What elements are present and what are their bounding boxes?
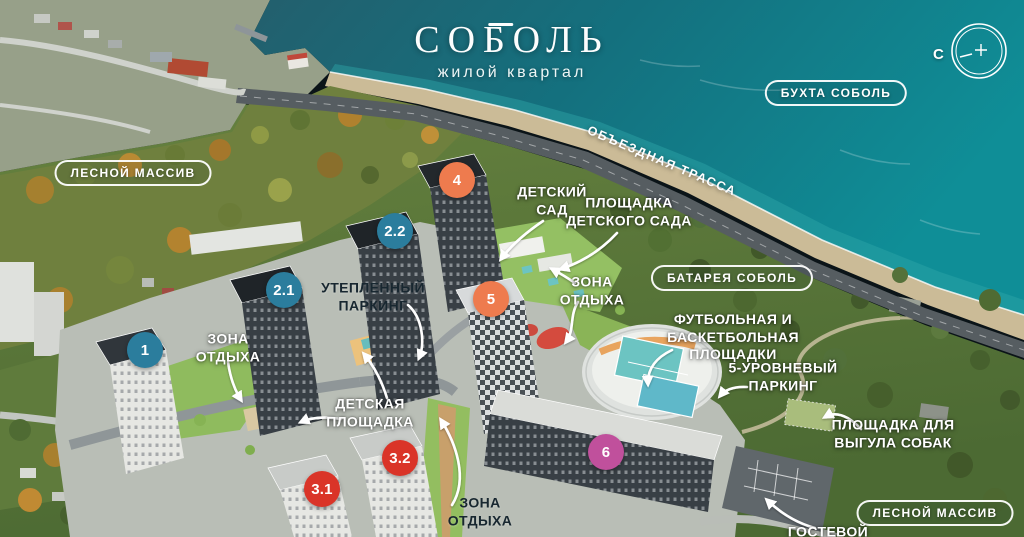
label-sports-grounds: ФУТБОЛЬНАЯ И БАСКЕТБОЛЬНАЯ ПЛОЩАДКИ bbox=[667, 311, 799, 364]
compass: С bbox=[950, 22, 1008, 80]
building-marker-1: 1 bbox=[127, 332, 163, 368]
label-guest-parking: ГОСТЕВОЙ bbox=[788, 523, 868, 537]
project-title: СОБОЛЬ bbox=[414, 20, 610, 62]
logo-macron-decoration bbox=[488, 23, 513, 26]
building-marker-3-1: 3.1 bbox=[304, 471, 340, 507]
area-badge-forest-left: ЛЕСНОЙ МАССИВ bbox=[55, 160, 212, 186]
compass-north-label: С bbox=[933, 46, 944, 63]
label-warm-parking: УТЕПЛЕННЫЙ ПАРКИНГ bbox=[321, 280, 425, 315]
building-marker-4: 4 bbox=[439, 162, 475, 198]
building-marker-5: 5 bbox=[473, 281, 509, 317]
area-badge-bay: БУХТА СОБОЛЬ bbox=[765, 80, 907, 106]
label-rest-zone-left: ЗОНА ОТДЫХА bbox=[196, 331, 261, 366]
project-subtitle: жилой квартал bbox=[414, 64, 610, 82]
label-rest-zone-bottom: ЗОНА ОТДЫХА bbox=[448, 495, 513, 530]
arrow-rest-zone-bottom bbox=[441, 420, 460, 505]
project-logo: СОБОЛЬ жилой квартал bbox=[414, 20, 610, 82]
arrow-kids-playground-up bbox=[364, 354, 387, 398]
label-kids-playground: ДЕТСКАЯ ПЛОЩАДКА bbox=[326, 396, 414, 431]
building-marker-2-1: 2.1 bbox=[266, 272, 302, 308]
arrow-rest-zone-left bbox=[228, 362, 241, 400]
label-rest-zone-center: ЗОНА ОТДЫХА bbox=[560, 274, 625, 309]
masterplan-image: СОБОЛЬ жилой квартал С ОБЪЕЗДНАЯ ТРАССА … bbox=[0, 0, 1024, 537]
building-marker-2-2: 2.2 bbox=[377, 213, 413, 249]
arrow-kindergarten-playground bbox=[561, 233, 617, 269]
area-badge-forest-bottom: ЛЕСНОЙ МАССИВ bbox=[857, 500, 1014, 526]
area-badge-battery: БАТАРЕЯ СОБОЛЬ bbox=[651, 265, 813, 291]
label-multilevel-parking: 5-УРОВНЕВЫЙ ПАРКИНГ bbox=[728, 360, 837, 395]
building-marker-3-2: 3.2 bbox=[382, 440, 418, 476]
label-kindergarten-playground: ПЛОЩАДКА ДЕТСКОГО САДА bbox=[566, 195, 692, 230]
label-dog-walking-area: ПЛОЩАДКА ДЛЯ ВЫГУЛА СОБАК bbox=[832, 417, 955, 452]
arrow-kindergarten bbox=[501, 221, 543, 259]
building-marker-6: 6 bbox=[588, 434, 624, 470]
compass-icon bbox=[950, 22, 1008, 80]
